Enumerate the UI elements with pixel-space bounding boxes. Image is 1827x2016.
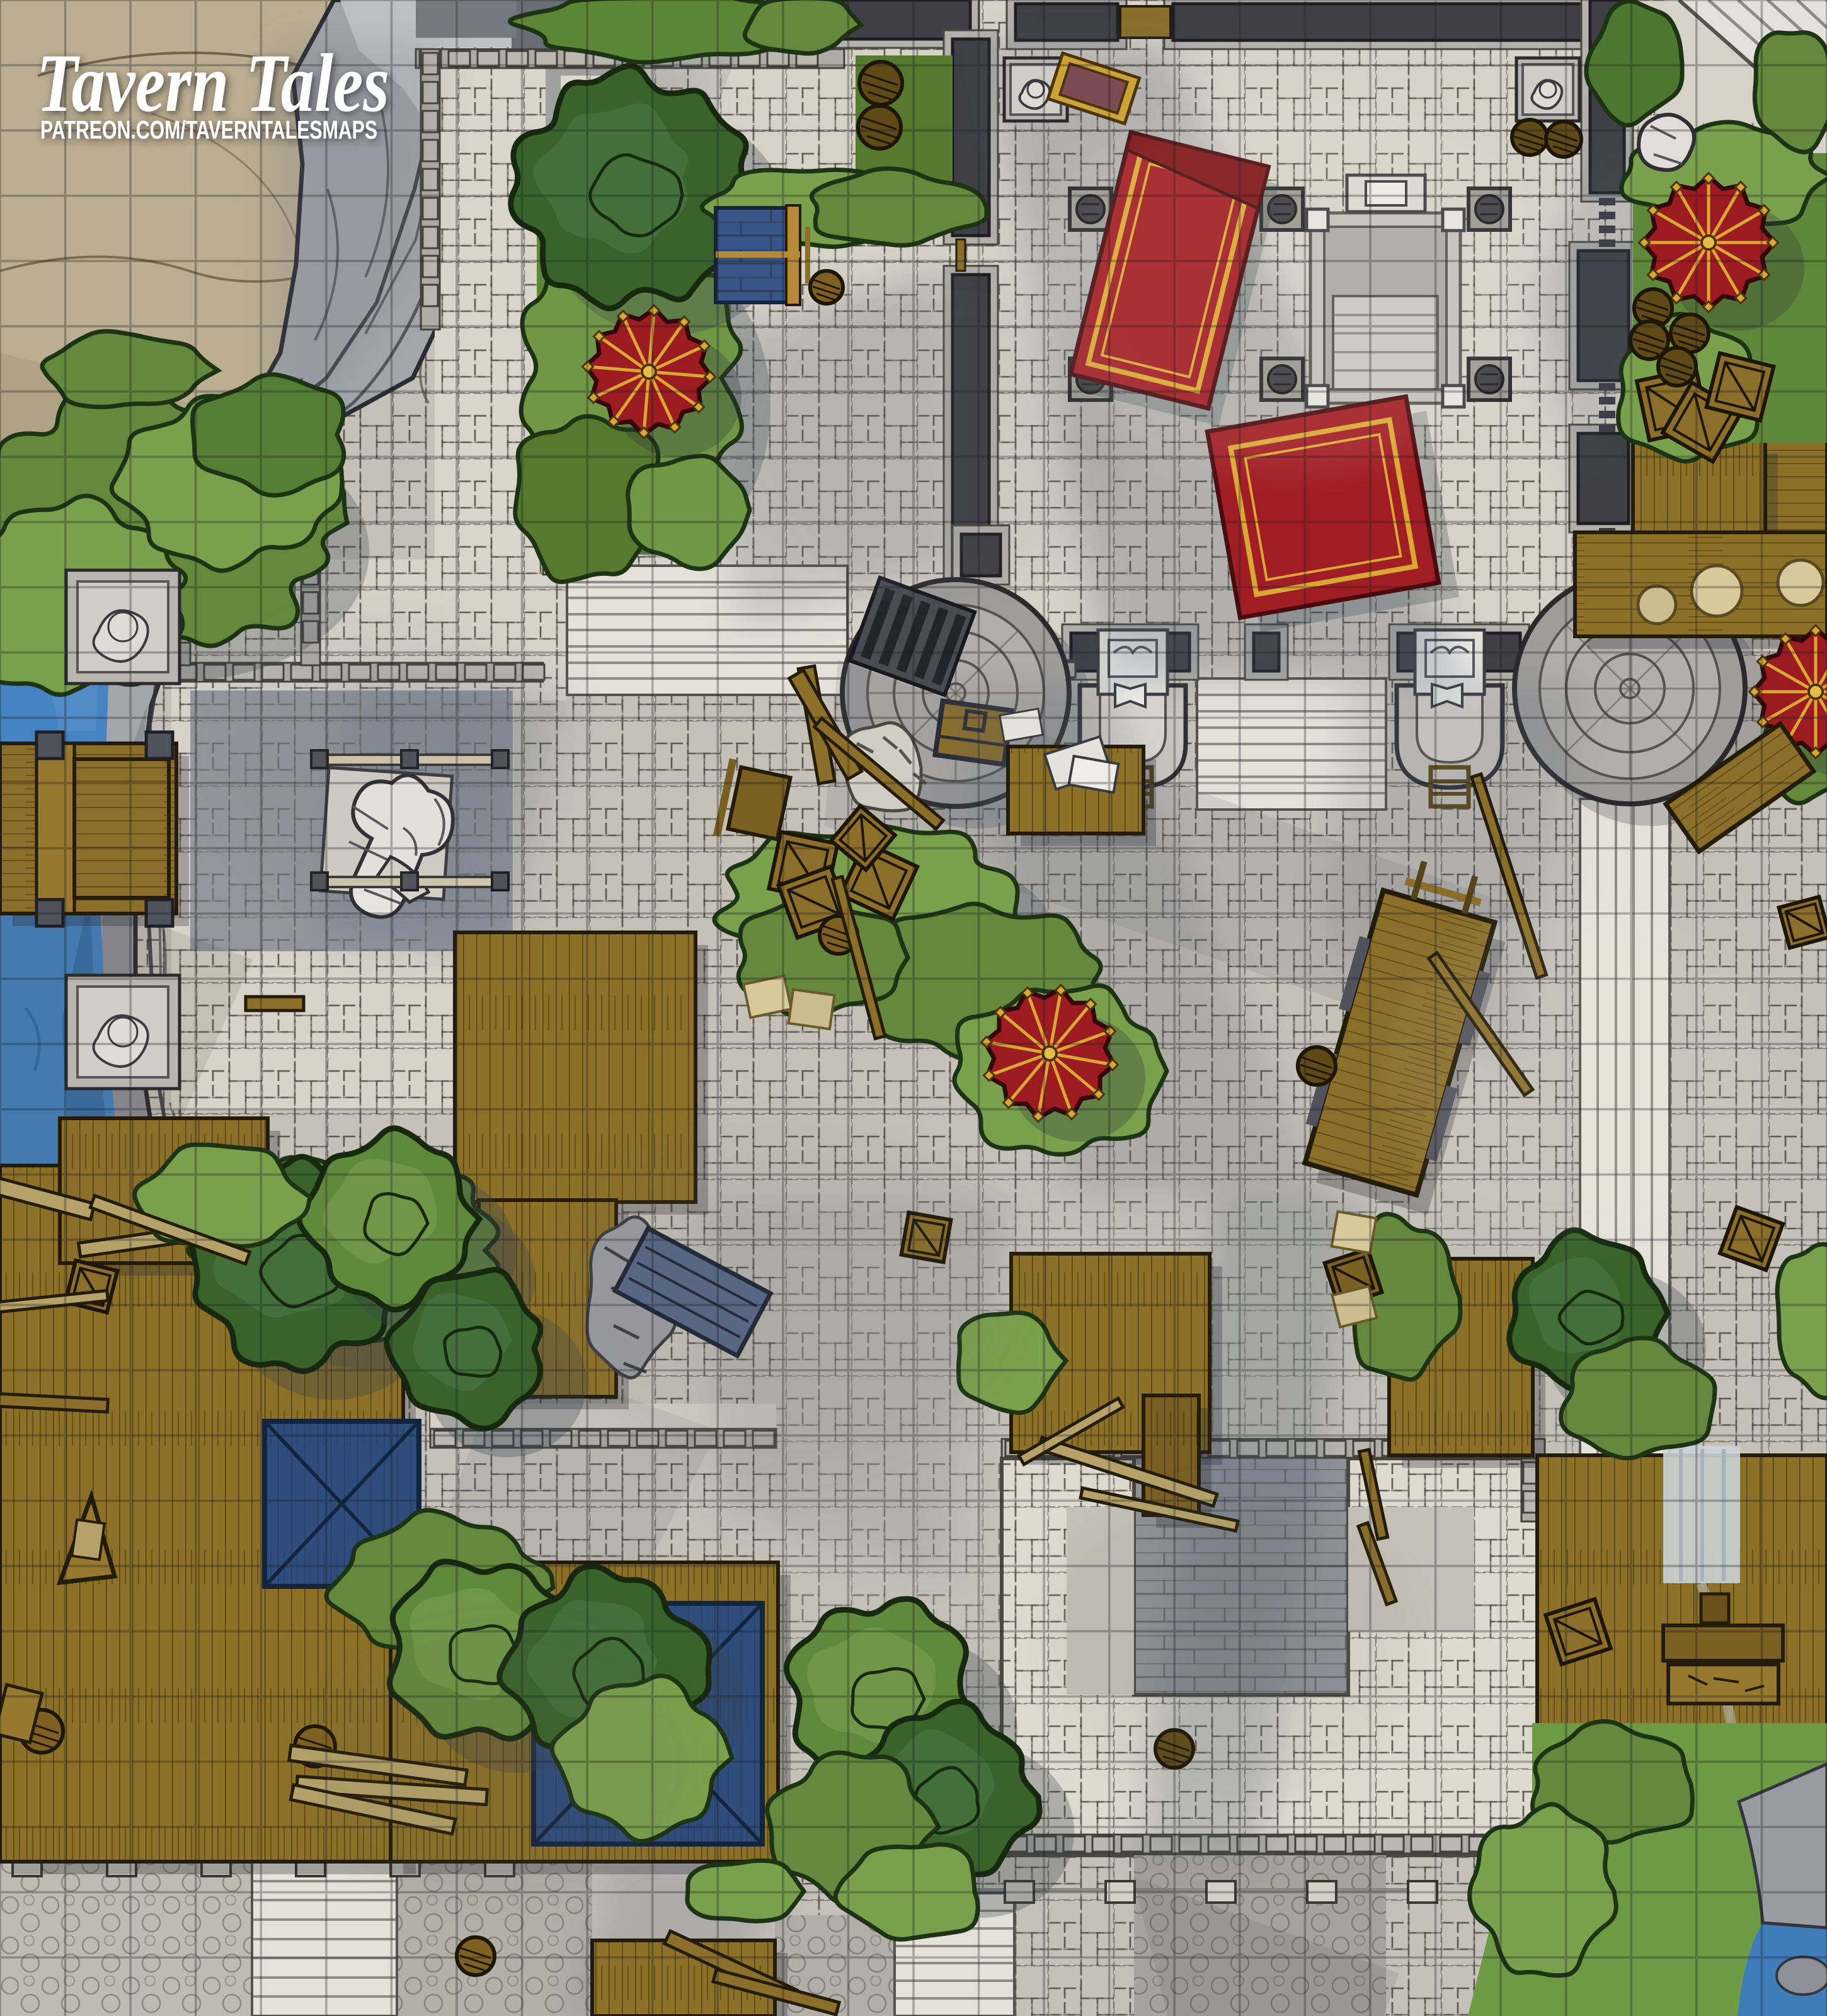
svg-text:PATREON.COM/TAVERNTALESMAPS: PATREON.COM/TAVERNTALESMAPS (40, 115, 377, 144)
